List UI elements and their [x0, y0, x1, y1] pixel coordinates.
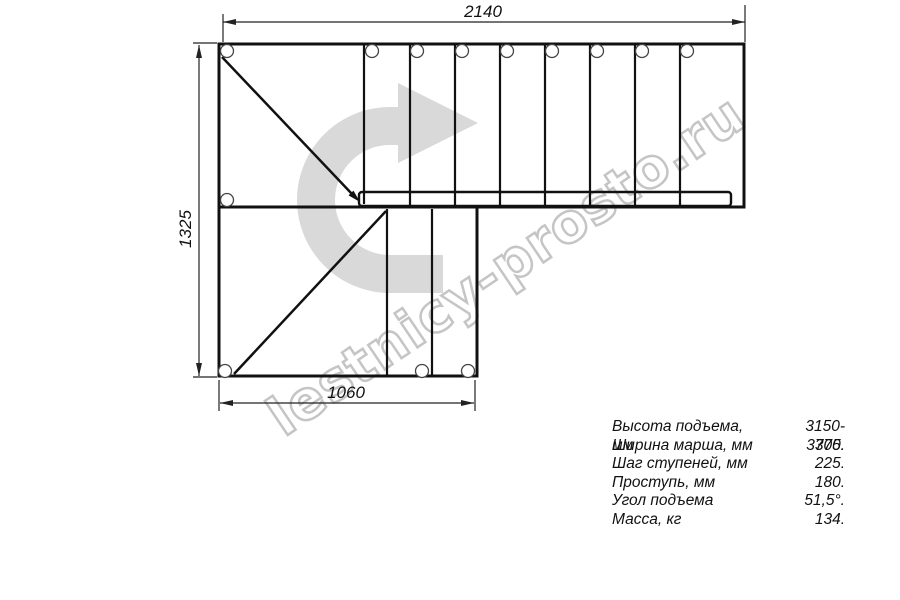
spec-row-step-pitch: Шаг ступеней, мм 225.: [612, 455, 845, 474]
spec-row-angle: Угол подъема 51,5°.: [612, 492, 845, 511]
spec-value: 700.: [815, 437, 845, 456]
dimension-left: [193, 43, 217, 377]
dimension-label-top: 2140: [433, 2, 533, 22]
spec-label: Высота подъема, мм: [612, 418, 767, 437]
spec-label: Шаг ступеней, мм: [612, 455, 748, 474]
dimension-label-left: 1325: [176, 189, 196, 269]
spec-value: 51,5°.: [804, 492, 845, 511]
spec-row-tread: Проступь, мм 180.: [612, 474, 845, 493]
spec-label: Проступь, мм: [612, 474, 715, 493]
spec-label: Угол подъема: [612, 492, 713, 511]
spec-row-height: Высота подъема, мм 3150-3375.: [612, 418, 845, 437]
spec-label: Ширина марша, мм: [612, 437, 753, 456]
spec-value: 134.: [815, 511, 845, 530]
stair-plan-drawing: lestnicy-prosto.ru: [0, 0, 900, 600]
spec-value: 180.: [815, 474, 845, 493]
spec-value: 225.: [815, 455, 845, 474]
spec-table: Высота подъема, мм 3150-3375. Ширина мар…: [612, 418, 845, 530]
spec-label: Масса, кг: [612, 511, 681, 530]
spec-row-mass: Масса, кг 134.: [612, 511, 845, 530]
dimension-label-bottom: 1060: [296, 383, 396, 403]
spec-value: 3150-3375.: [767, 418, 845, 437]
